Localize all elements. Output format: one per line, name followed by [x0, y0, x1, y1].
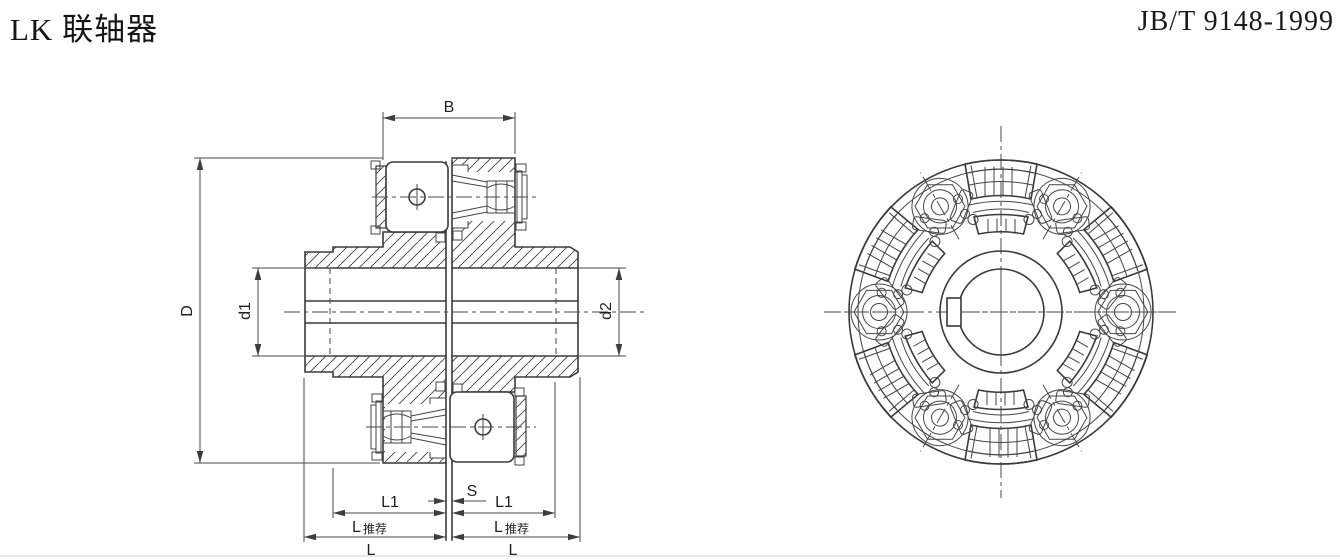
dim-label-l1: L1 [381, 494, 399, 511]
retainer-tab [436, 382, 445, 391]
dim-label-d2: d2 [598, 302, 615, 320]
retainer-tab [453, 231, 462, 240]
dim-label-l1: L1 [495, 494, 513, 511]
page-title: LK 联轴器 [10, 4, 158, 49]
front-view [824, 126, 1178, 498]
dim-label-l-rec: L [494, 519, 503, 536]
dimension-b: B [383, 99, 515, 160]
retainer-tab [436, 233, 445, 242]
liner-end-tab [515, 457, 524, 465]
dim-label-d: D [179, 305, 196, 317]
technical-drawing: B D d1 d2 [0, 0, 1340, 560]
drawing-page: LK 联轴器 JB/T 9148-1999 [0, 0, 1340, 560]
dim-label-s: S [467, 483, 478, 500]
dim-label-l-rec-suffix: 推荐 [363, 522, 387, 536]
liner-end-tab [515, 388, 524, 396]
dim-label-l-rec: L [352, 519, 361, 536]
dim-label-d1: d1 [237, 302, 254, 320]
page-bottom-rule [0, 555, 1340, 557]
dimension-l1-left: L1 [333, 468, 446, 518]
standard-code: JB/T 9148-1999 [1138, 6, 1334, 38]
dim-label-l-rec-suffix: 推荐 [505, 522, 529, 536]
section-view: B D d1 d2 [179, 99, 646, 559]
dimension-d: D [179, 158, 383, 463]
dim-label-b: B [444, 99, 455, 116]
hub-left-top-hatch [305, 232, 446, 268]
socket-mouth-steps [430, 398, 446, 458]
dimension-s: S [428, 483, 486, 501]
keyway [947, 298, 961, 326]
elastic-liner-strip [516, 396, 526, 456]
